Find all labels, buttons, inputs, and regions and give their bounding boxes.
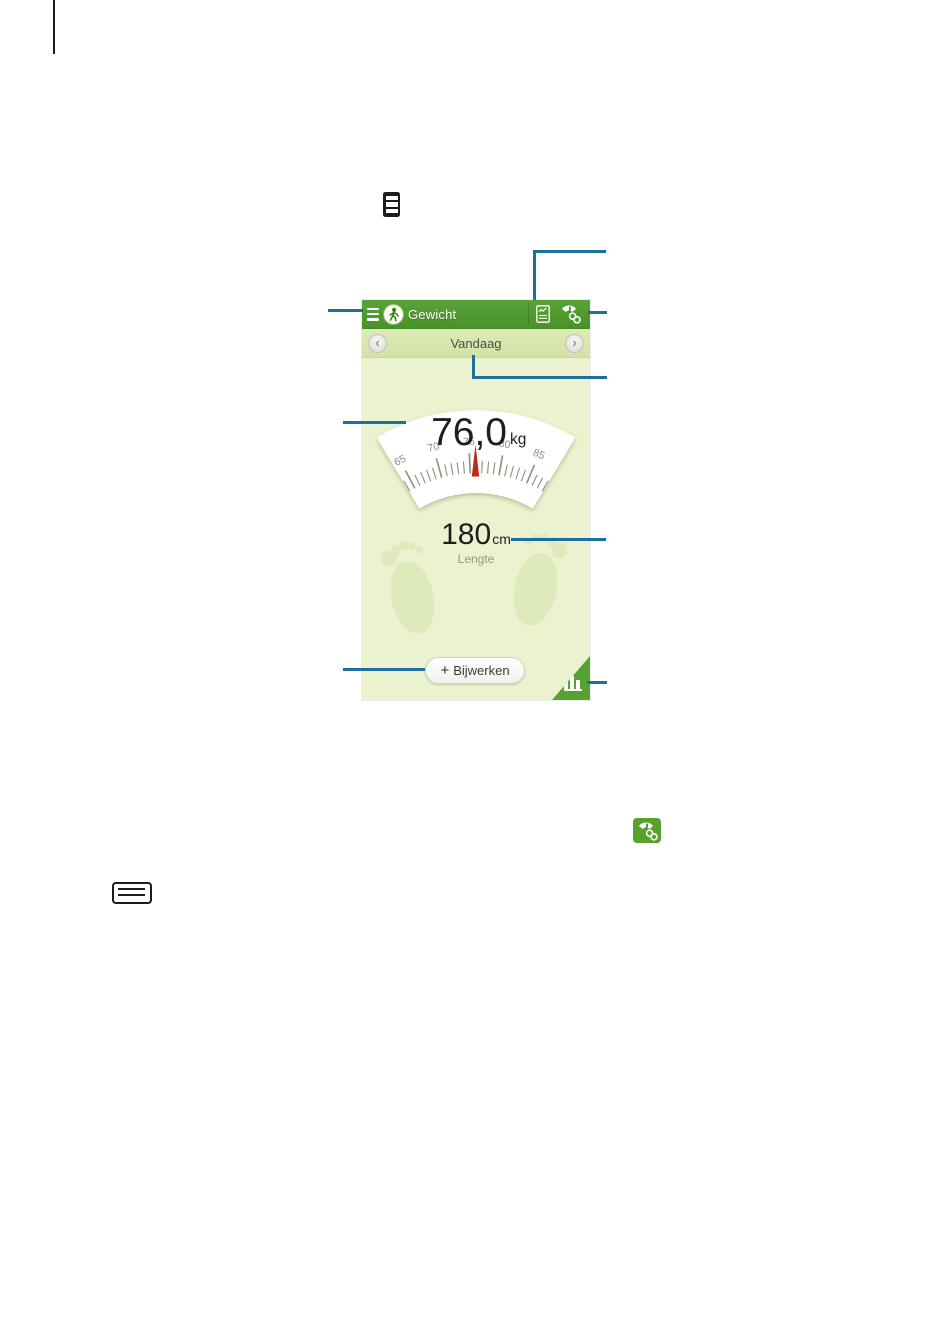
scale-link-icon[interactable] [558,304,582,324]
callout-line-accessory [588,311,607,314]
height-caption: Lengte [362,552,590,566]
app-header: Gewicht [362,300,590,329]
app-title: Gewicht [408,307,456,322]
callout-line-journal [533,250,606,300]
plus-icon: + [440,662,449,679]
journal-chart-icon[interactable] [536,305,550,323]
pedestrian-icon [384,305,403,324]
menu-key-icon [112,882,152,904]
weight-value: 76,0 [431,411,507,454]
chevron-left-icon[interactable]: ‹ [368,334,387,353]
scale-link-icon [633,818,661,843]
callout-line-height [511,538,606,541]
height-value: 180 [441,518,491,552]
weight-scale-icon [383,192,400,217]
date-label: Vandaag [450,336,501,351]
callout-line-date [472,355,607,379]
weight-unit: kg [510,431,526,448]
height-reading: 180cm [362,518,590,552]
app-body: 65 70 75 80 85 76,0 kg 180cm Lengte + Bi… [362,358,590,700]
chevron-right-icon[interactable]: › [565,334,584,353]
manual-page: Gewicht ‹ V [0,0,950,1344]
page-margin-rule [53,0,55,54]
callout-line-chart [587,681,607,684]
callout-line-dial [343,421,406,424]
header-separator [528,303,529,325]
callout-line-menu [328,309,363,312]
update-button-label: Bijwerken [453,663,509,678]
update-button[interactable]: + Bijwerken [425,657,525,684]
drawer-menu-icon[interactable] [367,308,380,321]
date-navigator: ‹ Vandaag › [362,329,590,358]
height-unit: cm [492,531,511,547]
callout-line-update [343,668,425,671]
